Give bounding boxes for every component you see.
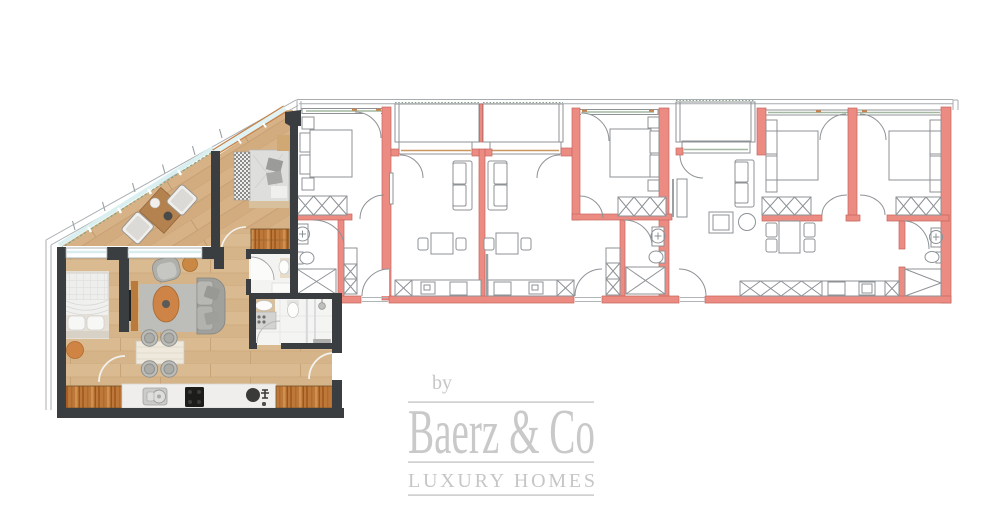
svg-text:by: by (432, 372, 452, 394)
svg-text:Baerz & Co: Baerz & Co (408, 397, 595, 467)
